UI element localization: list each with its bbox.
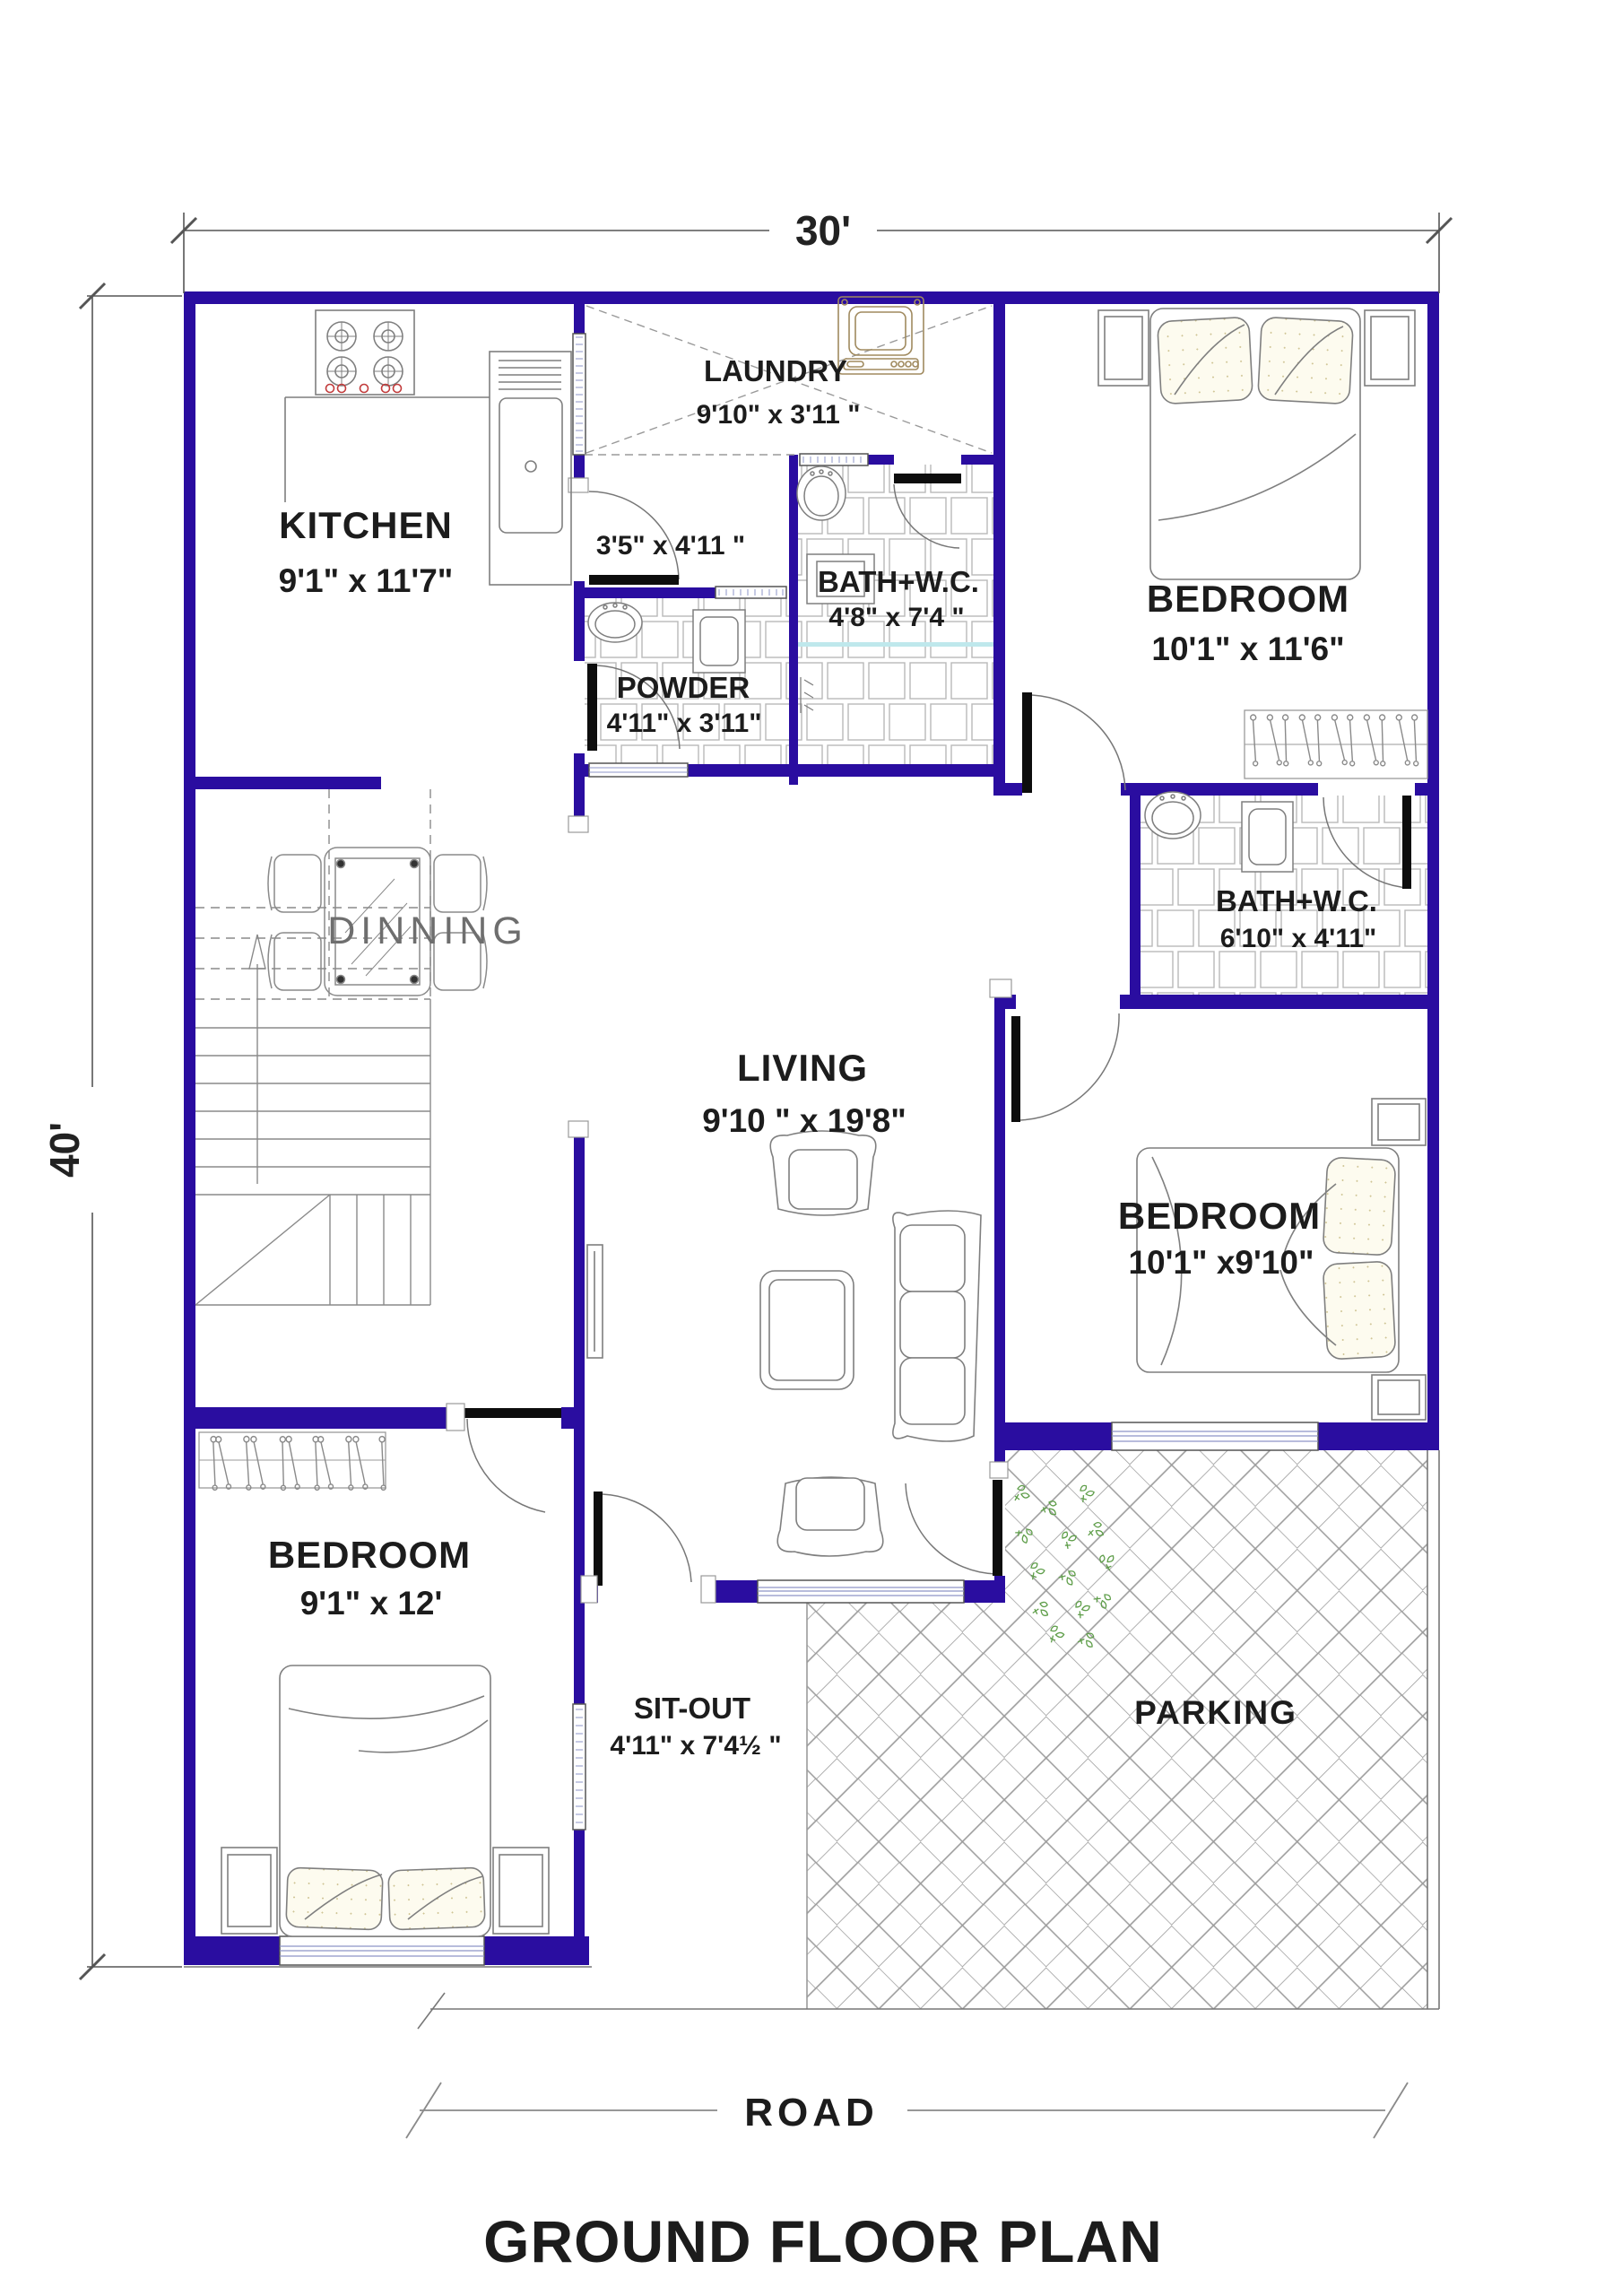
dimension-height-label: 40' <box>41 1122 88 1178</box>
bath-top-label: BATH+W.C. <box>818 565 979 598</box>
parking-label: PARKING <box>1134 1694 1297 1731</box>
nightstand <box>1372 1375 1426 1420</box>
bath-right-door-leaf <box>1402 796 1411 889</box>
coffee-table <box>760 1271 854 1389</box>
jamb-sitout-b <box>701 1576 716 1603</box>
wall-bedroom2-north-b <box>1120 995 1130 1009</box>
dimension-width-label: 30' <box>795 207 851 254</box>
window-bath-top <box>800 454 868 465</box>
powder-dims: 4'11" x 3'11" <box>607 709 762 738</box>
washing-machine-icon <box>838 297 924 374</box>
passage-dims: 3'5" x 4'11 " <box>596 531 745 561</box>
nightstand <box>221 1848 277 1934</box>
wall-lobby-b <box>1121 783 1318 796</box>
sofa-icon <box>893 1211 981 1441</box>
bath-top-dims: 4'8" x 7'4 " <box>828 603 964 632</box>
kitchen-sink-cabinet <box>490 352 571 585</box>
parking-herringbone-paving <box>807 1450 1427 2009</box>
nightstand <box>1372 1099 1426 1145</box>
kitchen-dims: 9'1" x 11'7" <box>279 562 454 599</box>
wall-bedroomTR-left <box>993 304 1005 796</box>
wardrobe-bedroom1 <box>199 1432 390 1491</box>
bed-icon-bottom-left <box>280 1665 490 1936</box>
wall-bedroom1-south-a <box>184 1936 280 1965</box>
armchair-top <box>770 1131 876 1215</box>
wall-bath-top-north-b <box>961 455 993 465</box>
road-label: ROAD <box>744 2091 879 2135</box>
kitchen-door-leaf <box>589 575 679 585</box>
window-living-south <box>758 1580 964 1603</box>
bedroom1-furniture <box>221 1665 549 1936</box>
jamb-arch-bottom <box>568 1121 588 1137</box>
jamb-entrance <box>990 1462 1008 1478</box>
bedroomTR-furniture <box>1098 309 1415 579</box>
bath-top-door-leaf <box>894 474 961 483</box>
wall-outer-left <box>184 291 195 1965</box>
wall-powder-south-a <box>574 764 589 777</box>
wall-bath-right-left <box>1130 785 1141 1009</box>
wall-mid-f <box>574 1429 585 1580</box>
living-label: LIVING <box>737 1047 868 1089</box>
window-bedroom2-south <box>1112 1422 1318 1450</box>
window-sitout-west <box>573 1704 585 1830</box>
window-bedroom1-south <box>280 1936 484 1965</box>
powder-sink-icon <box>588 603 642 642</box>
laundry-label: LAUNDRY <box>704 354 847 387</box>
wall-bath-top-left <box>789 455 798 785</box>
sitout-dims: 4'11" x 7'4½ " <box>610 1731 781 1761</box>
wall-lobby-c <box>1415 783 1439 796</box>
wall-bedroom1-north-a <box>195 1407 450 1429</box>
bath-right-dims: 6'10" x 4'11" <box>1220 924 1377 953</box>
bedroomTR-door-arc <box>1032 695 1125 790</box>
wall-powder-top-a <box>574 587 716 598</box>
page-title: GROUND FLOOR PLAN <box>483 2208 1163 2274</box>
jamb-sitout-a <box>581 1576 597 1603</box>
floor-plan-page: 30' 40' KITCHEN 9'1" x 11'7" LAUNDRY 9'1… <box>0 0 1622 2296</box>
wall-bath-right-south <box>1130 995 1439 1009</box>
powder-door-leaf <box>587 664 597 751</box>
wall-lobby-a <box>993 783 1022 796</box>
bath-right-sink-icon <box>1145 792 1201 839</box>
wall-kitchen-south <box>195 777 381 789</box>
jamb-bedroom1-door <box>447 1404 464 1431</box>
powder-wc-icon <box>693 610 745 673</box>
wall-divider <box>994 998 1005 1478</box>
bedroomTR-label: BEDROOM <box>1147 578 1349 620</box>
floor-plan-drawing: 30' 40' KITCHEN 9'1" x 11'7" LAUNDRY 9'1… <box>0 0 1622 2296</box>
window-powder-south <box>589 763 688 777</box>
wall-outer-right <box>1427 291 1439 1450</box>
stove-icon <box>316 310 414 395</box>
wardrobe-top-right <box>1245 710 1427 778</box>
living-dims: 9'10 " x 19'8" <box>702 1102 906 1139</box>
wall-mid-e <box>574 1136 585 1407</box>
bedroom2-door-leaf <box>1011 1016 1020 1122</box>
wall-mid-a <box>574 304 585 334</box>
bath-top-sink-icon <box>797 466 846 520</box>
wall-living-south-c <box>964 1580 1005 1603</box>
wall-bedroom1-corner <box>484 1936 585 1965</box>
wall-living-south-b <box>713 1580 758 1603</box>
window-kitchen-laundry <box>573 334 585 455</box>
wall-mid-d <box>574 753 585 821</box>
bedroom1-dims: 9'1" x 12' <box>300 1585 443 1622</box>
living-furniture <box>587 1131 981 1556</box>
sitout-label: SIT-OUT <box>634 1692 750 1725</box>
sitout-door-leaf <box>594 1492 603 1586</box>
road-annotation: ROAD <box>406 2083 1408 2138</box>
laundry-dims: 9'10" x 3'11 " <box>697 400 861 430</box>
bedroomTR-dims: 10'1" x 11'6" <box>1151 631 1344 667</box>
jamb-lobby-opening <box>990 979 1011 997</box>
wall-bedroom1-north-b <box>561 1407 585 1429</box>
nightstand <box>1098 310 1149 386</box>
nightstand <box>493 1848 549 1934</box>
wall-bath-top-north-a <box>868 455 894 465</box>
entrance-door-arc <box>906 1483 996 1574</box>
window-powder-north <box>716 587 786 598</box>
bath-right-label: BATH+W.C. <box>1216 884 1377 918</box>
bedroom1-door-leaf <box>464 1408 561 1418</box>
bedroom1-door-arc <box>467 1419 545 1512</box>
jamb-arch-top <box>568 816 588 832</box>
wall-bedroom2-south-b <box>1318 1422 1439 1450</box>
kitchen-drainboard <box>499 361 561 389</box>
powder-label: POWDER <box>617 671 750 704</box>
bath-right-wc-icon <box>1242 802 1293 872</box>
wall-bedroom2-south-a <box>1005 1422 1112 1450</box>
kitchen-sink-bowl <box>499 398 562 533</box>
kitchen-counter-edge <box>285 397 490 502</box>
wall-powder-south-b <box>688 764 993 777</box>
entrance-door-leaf <box>993 1480 1002 1576</box>
bedroomTR-door-leaf <box>1022 692 1032 793</box>
bedroom2-door-arc <box>1020 1013 1119 1120</box>
sitout-door-arc <box>603 1494 691 1582</box>
wall-outer-top <box>184 291 1439 304</box>
bed-icon-top-right <box>1150 309 1360 579</box>
driveway-tick <box>418 1993 445 2029</box>
bedroom1-label: BEDROOM <box>268 1534 471 1576</box>
kitchen-sink-drain <box>525 461 536 472</box>
stairs-direction-arrow <box>249 935 265 1184</box>
armchair-bottom <box>777 1477 883 1556</box>
wall-sitout-west-b <box>574 1830 585 1936</box>
tv-icon <box>587 1245 603 1358</box>
bedroom2-label: BEDROOM <box>1118 1195 1321 1237</box>
wall-sitout-west-a <box>574 1603 585 1704</box>
kitchen-label: KITCHEN <box>279 504 453 546</box>
dinning-label: DINNING <box>327 909 528 952</box>
nightstand <box>1365 310 1415 386</box>
bedroom2-dims: 10'1" x9'10" <box>1128 1244 1314 1281</box>
